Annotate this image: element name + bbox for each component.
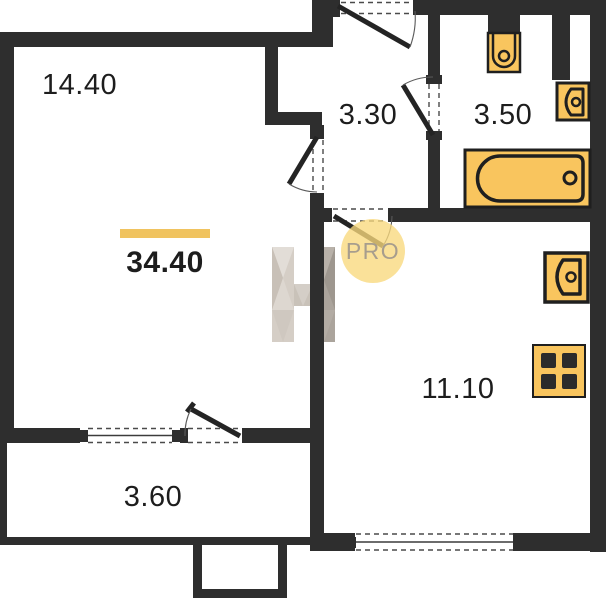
h-logo-watermark [272,247,335,342]
kitchen-window [348,534,521,550]
toilet-icon [488,33,520,72]
wall [0,32,14,443]
wall [413,0,606,15]
wall [428,15,440,77]
total-area-label: 34.40 [126,246,204,279]
room-label-living: 14.40 [42,69,117,101]
room-label-kitchen: 11.10 [422,373,495,405]
wall [310,222,324,543]
living-room-door [289,137,323,192]
room-label-bathroom: 3.50 [474,99,532,131]
bathroom-door [403,77,439,135]
wall [513,533,606,551]
room-label-balcony: 3.60 [124,481,182,513]
wall [180,428,188,443]
accent-underline [120,229,210,238]
balcony-wall [0,443,7,545]
wall [388,208,606,222]
stove-icon [533,345,585,397]
bathtub-icon [465,150,590,207]
wall [265,112,322,125]
bathroom-sink-icon [557,83,589,120]
floorplan-canvas: PRO 14.40 3.30 3.50 34.40 11.10 3.60 [0,0,606,600]
pro-watermark: PRO [341,219,405,283]
balcony-door [185,403,242,443]
wall [0,32,324,47]
balcony-wall [0,537,312,545]
entrance-door [330,0,415,47]
floorplan-svg: PRO 14.40 3.30 3.50 34.40 11.10 3.60 [0,0,606,600]
wall [310,193,324,222]
living-room-window [80,429,180,443]
balcony-wall [193,589,287,598]
wall [0,428,80,443]
wall [312,0,333,47]
shaft-wall [552,15,570,80]
wall [590,0,606,552]
kitchen-sink-icon [545,253,588,302]
door-hinge-stub [310,125,324,139]
room-label-hall: 3.30 [339,99,397,131]
door-hinge-stub [426,75,442,84]
wall [242,428,324,443]
wall [428,140,440,208]
pro-watermark-label: PRO [346,238,400,264]
